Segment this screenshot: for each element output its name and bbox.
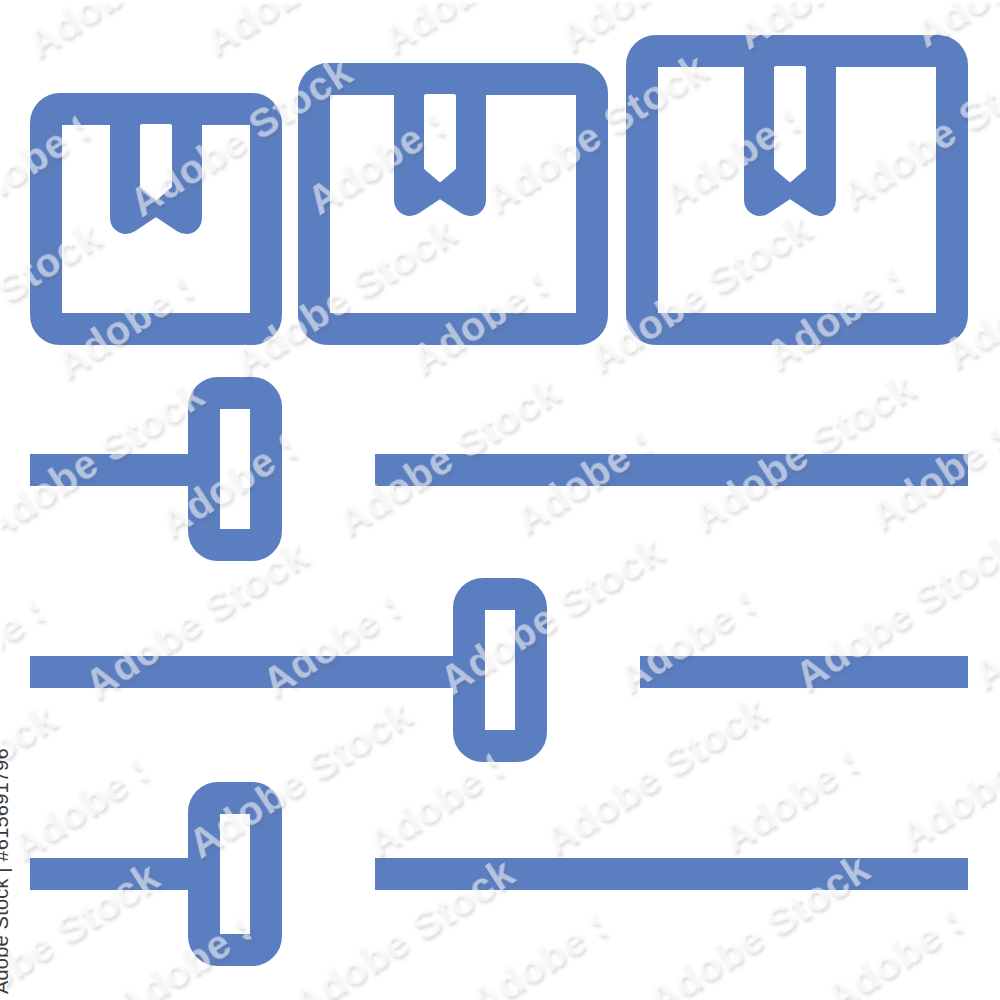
watermark-tiles-overlay: [0, 0, 1000, 1000]
packages-and-sliders-icon: Adobe Stock Adobe Stock: [0, 0, 1000, 1000]
watermark-id-label: Adobe Stock | #615691796: [0, 748, 13, 994]
stock-icon-preview: Adobe Stock Adobe Stock: [0, 0, 1000, 1000]
